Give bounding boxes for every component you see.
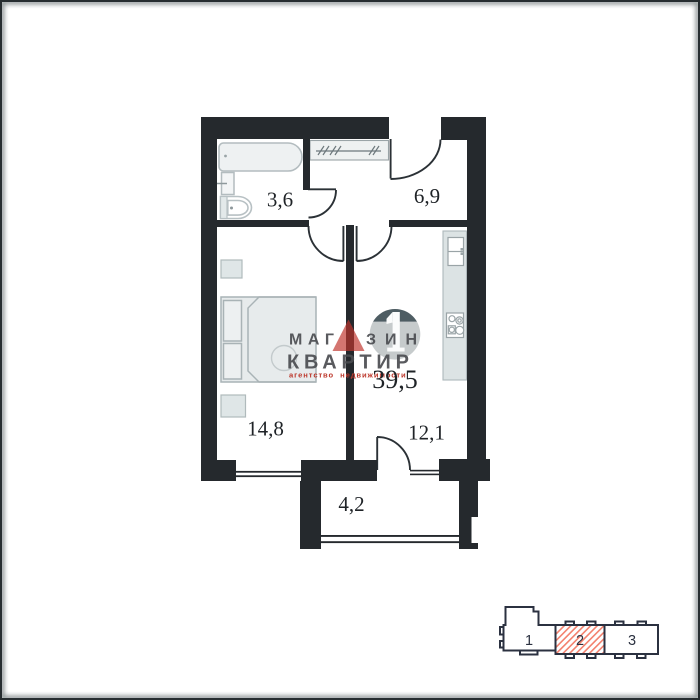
svg-text:3,6: 3,6 [267, 188, 293, 212]
svg-text:6,9: 6,9 [414, 184, 440, 208]
svg-text:12,1: 12,1 [408, 420, 445, 444]
svg-text:4,2: 4,2 [338, 492, 364, 516]
svg-text:3: 3 [628, 633, 636, 649]
svg-text:1: 1 [525, 633, 533, 649]
svg-text:ЗИН: ЗИН [366, 331, 426, 348]
svg-text:39,5: 39,5 [372, 365, 418, 394]
svg-text:МАГ: МАГ [289, 331, 339, 348]
svg-text:14,8: 14,8 [247, 416, 284, 440]
svg-text:2: 2 [576, 633, 584, 649]
